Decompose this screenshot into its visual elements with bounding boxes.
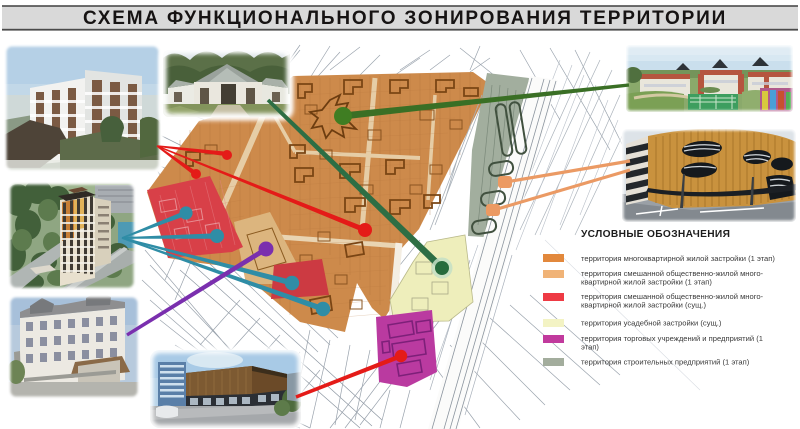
svg-text:территория усадебной застройки: территория усадебной застройки (сущ.) (581, 319, 722, 328)
svg-text:территория торговых учреждений: территория торговых учреждений и предпри… (581, 334, 763, 343)
svg-text:территория строительных предпр: территория строительных предприятий (1 э… (581, 358, 750, 367)
svg-text:УСЛОВНЫЕ ОБОЗНАЧЕНИЯ: УСЛОВНЫЕ ОБОЗНАЧЕНИЯ (581, 229, 730, 240)
svg-text:квартирной жилой застройки (су: квартирной жилой застройки (сущ.) (581, 301, 706, 310)
svg-text:квартирной жилой застройки (1: квартирной жилой застройки (1 этап) (581, 278, 712, 287)
svg-text:этап): этап) (581, 343, 599, 352)
svg-text:территория многоквартирной жил: территория многоквартирной жилой застрой… (581, 254, 775, 263)
svg-text:СХЕМА ФУНКЦИОНАЛЬНОГО ЗОНИРОВА: СХЕМА ФУНКЦИОНАЛЬНОГО ЗОНИРОВАНИЯ ТЕРРИТ… (83, 8, 727, 29)
